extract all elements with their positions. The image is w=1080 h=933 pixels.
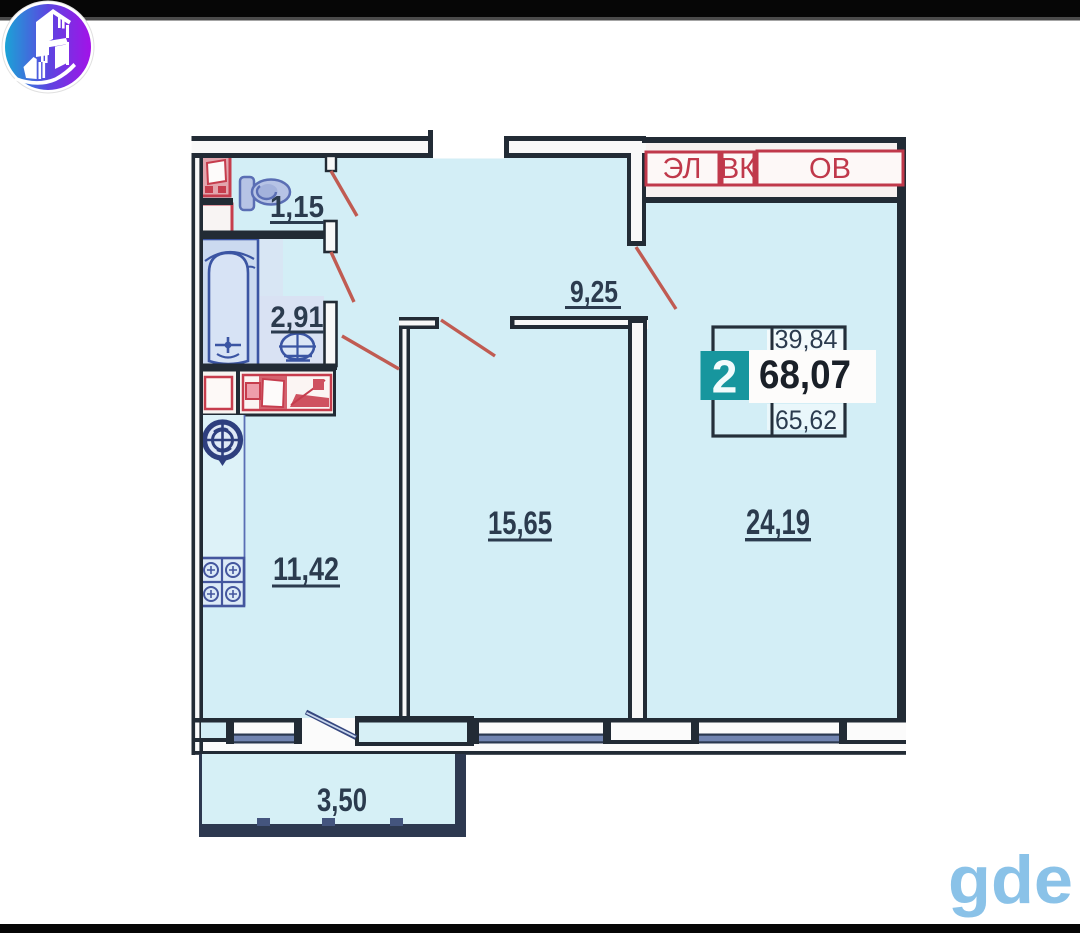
svg-text:ВК: ВК [720, 153, 756, 185]
svg-text:11,42: 11,42 [273, 551, 339, 587]
svg-text:9,25: 9,25 [570, 274, 618, 309]
svg-text:ОВ: ОВ [809, 153, 851, 185]
svg-text:2,91: 2,91 [271, 301, 324, 334]
svg-text:1,15: 1,15 [270, 189, 324, 224]
svg-text:ЭЛ: ЭЛ [663, 153, 702, 185]
svg-text:65,62: 65,62 [775, 405, 837, 435]
svg-text:24,19: 24,19 [746, 503, 810, 542]
svg-text:2: 2 [712, 351, 738, 403]
svg-text:3,50: 3,50 [317, 782, 367, 818]
svg-text:39,84: 39,84 [775, 324, 838, 354]
svg-text:gde: gde [948, 842, 1073, 918]
svg-text:15,65: 15,65 [488, 505, 552, 541]
svg-text:68,07: 68,07 [759, 353, 851, 397]
